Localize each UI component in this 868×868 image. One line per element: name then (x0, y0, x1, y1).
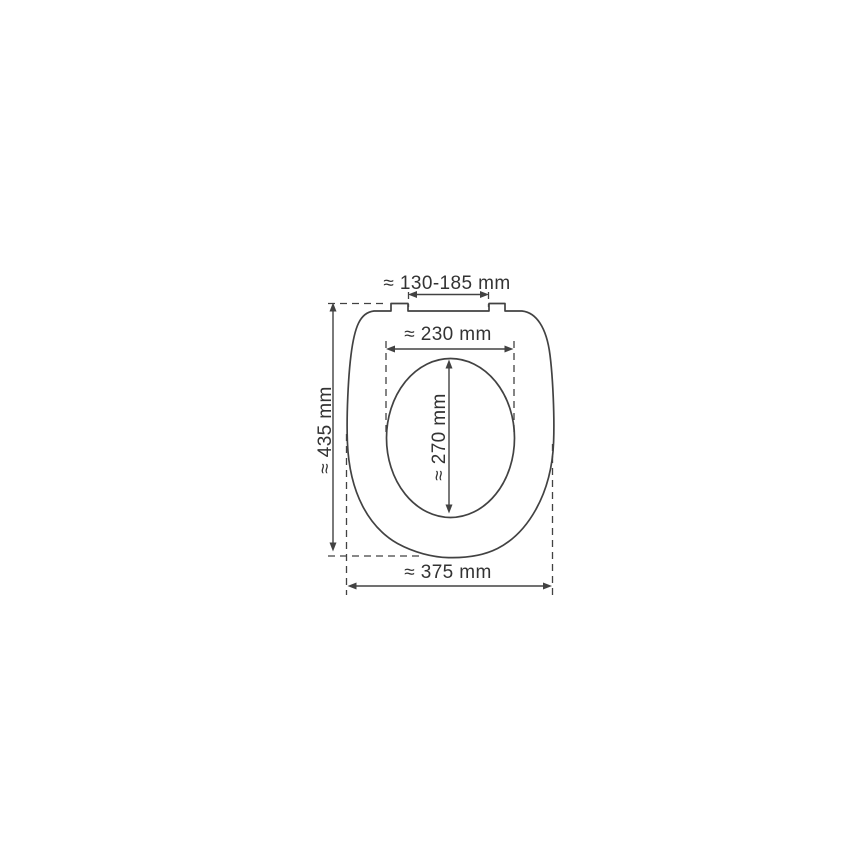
dimension-label-inner-depth: ≈ 270 mm (429, 393, 450, 481)
diagram-canvas: ≈ 130-185 mm ≈ 230 mm ≈ 270 mm ≈ 435 mm (0, 0, 868, 868)
seat-inner-opening (387, 359, 515, 518)
arrowhead-down-icon (446, 505, 453, 514)
dimension-label-overall-depth: ≈ 435 mm (315, 386, 336, 474)
dimension-overall-width: ≈ 375 mm (348, 562, 553, 590)
dimension-label-hinge-spacing: ≈ 130-185 mm (383, 273, 510, 294)
arrowhead-up-icon (446, 360, 453, 369)
dimension-hinge-spacing: ≈ 130-185 mm (383, 273, 510, 298)
arrowhead-right-icon (505, 346, 514, 353)
dimension-label-overall-width: ≈ 375 mm (404, 562, 492, 583)
dimension-diagram-svg: ≈ 130-185 mm ≈ 230 mm ≈ 270 mm ≈ 435 mm (0, 0, 868, 868)
arrowhead-right-icon (543, 583, 552, 590)
dimension-inner-width: ≈ 230 mm (386, 324, 514, 353)
arrowhead-left-icon (386, 346, 395, 353)
dimension-inner-depth: ≈ 270 mm (429, 360, 453, 514)
arrowhead-down-icon (330, 543, 337, 552)
dimension-label-inner-width: ≈ 230 mm (404, 324, 492, 345)
arrowhead-left-icon (348, 583, 357, 590)
dimension-overall-depth: ≈ 435 mm (315, 303, 337, 552)
